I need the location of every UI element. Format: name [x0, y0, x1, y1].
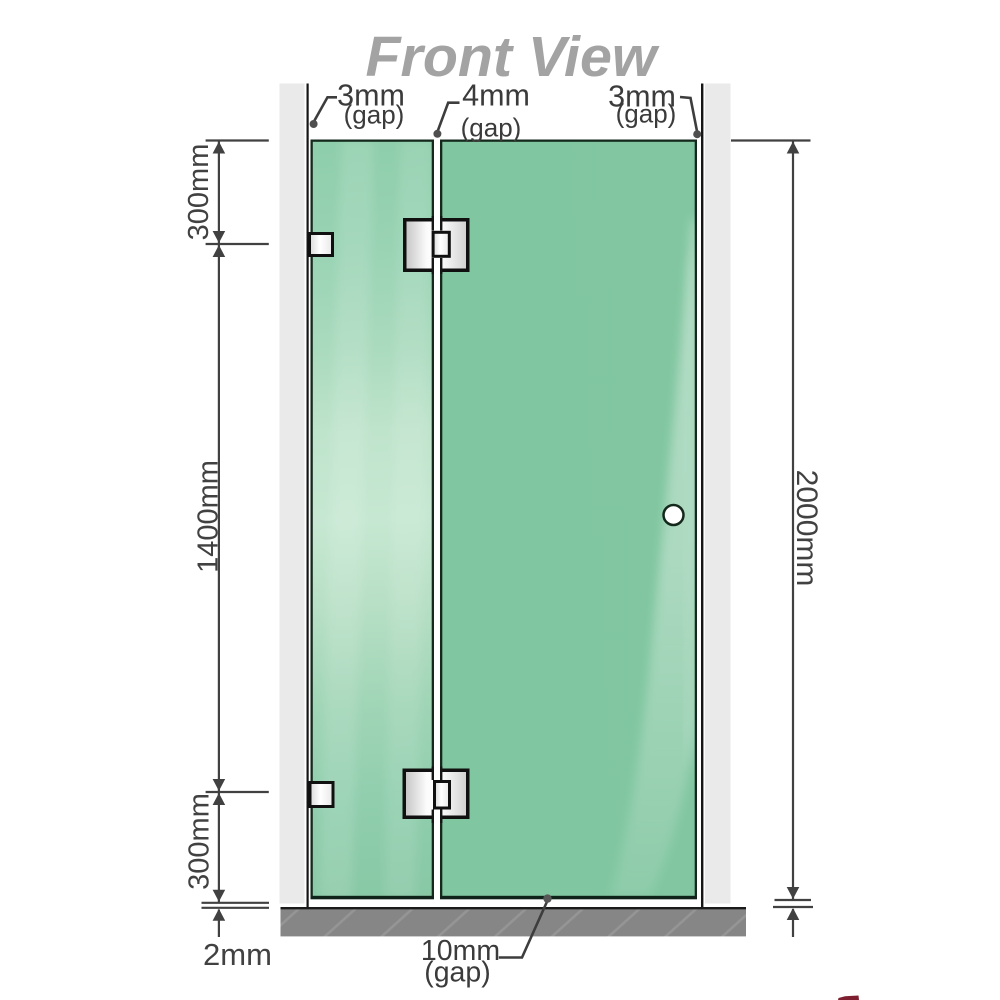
svg-text:300mm: 300mm — [184, 793, 216, 890]
svg-text:(gap): (gap) — [616, 99, 677, 129]
svg-text:2mm: 2mm — [203, 937, 272, 972]
svg-text:(gap): (gap) — [461, 113, 522, 143]
svg-text:(gap): (gap) — [344, 100, 405, 130]
svg-text:1400mm: 1400mm — [193, 460, 225, 573]
svg-text:300mm: 300mm — [183, 144, 215, 241]
svg-text:2000mm: 2000mm — [790, 470, 823, 587]
svg-text:(gap): (gap) — [424, 957, 491, 989]
svg-text:4mm: 4mm — [462, 79, 530, 113]
